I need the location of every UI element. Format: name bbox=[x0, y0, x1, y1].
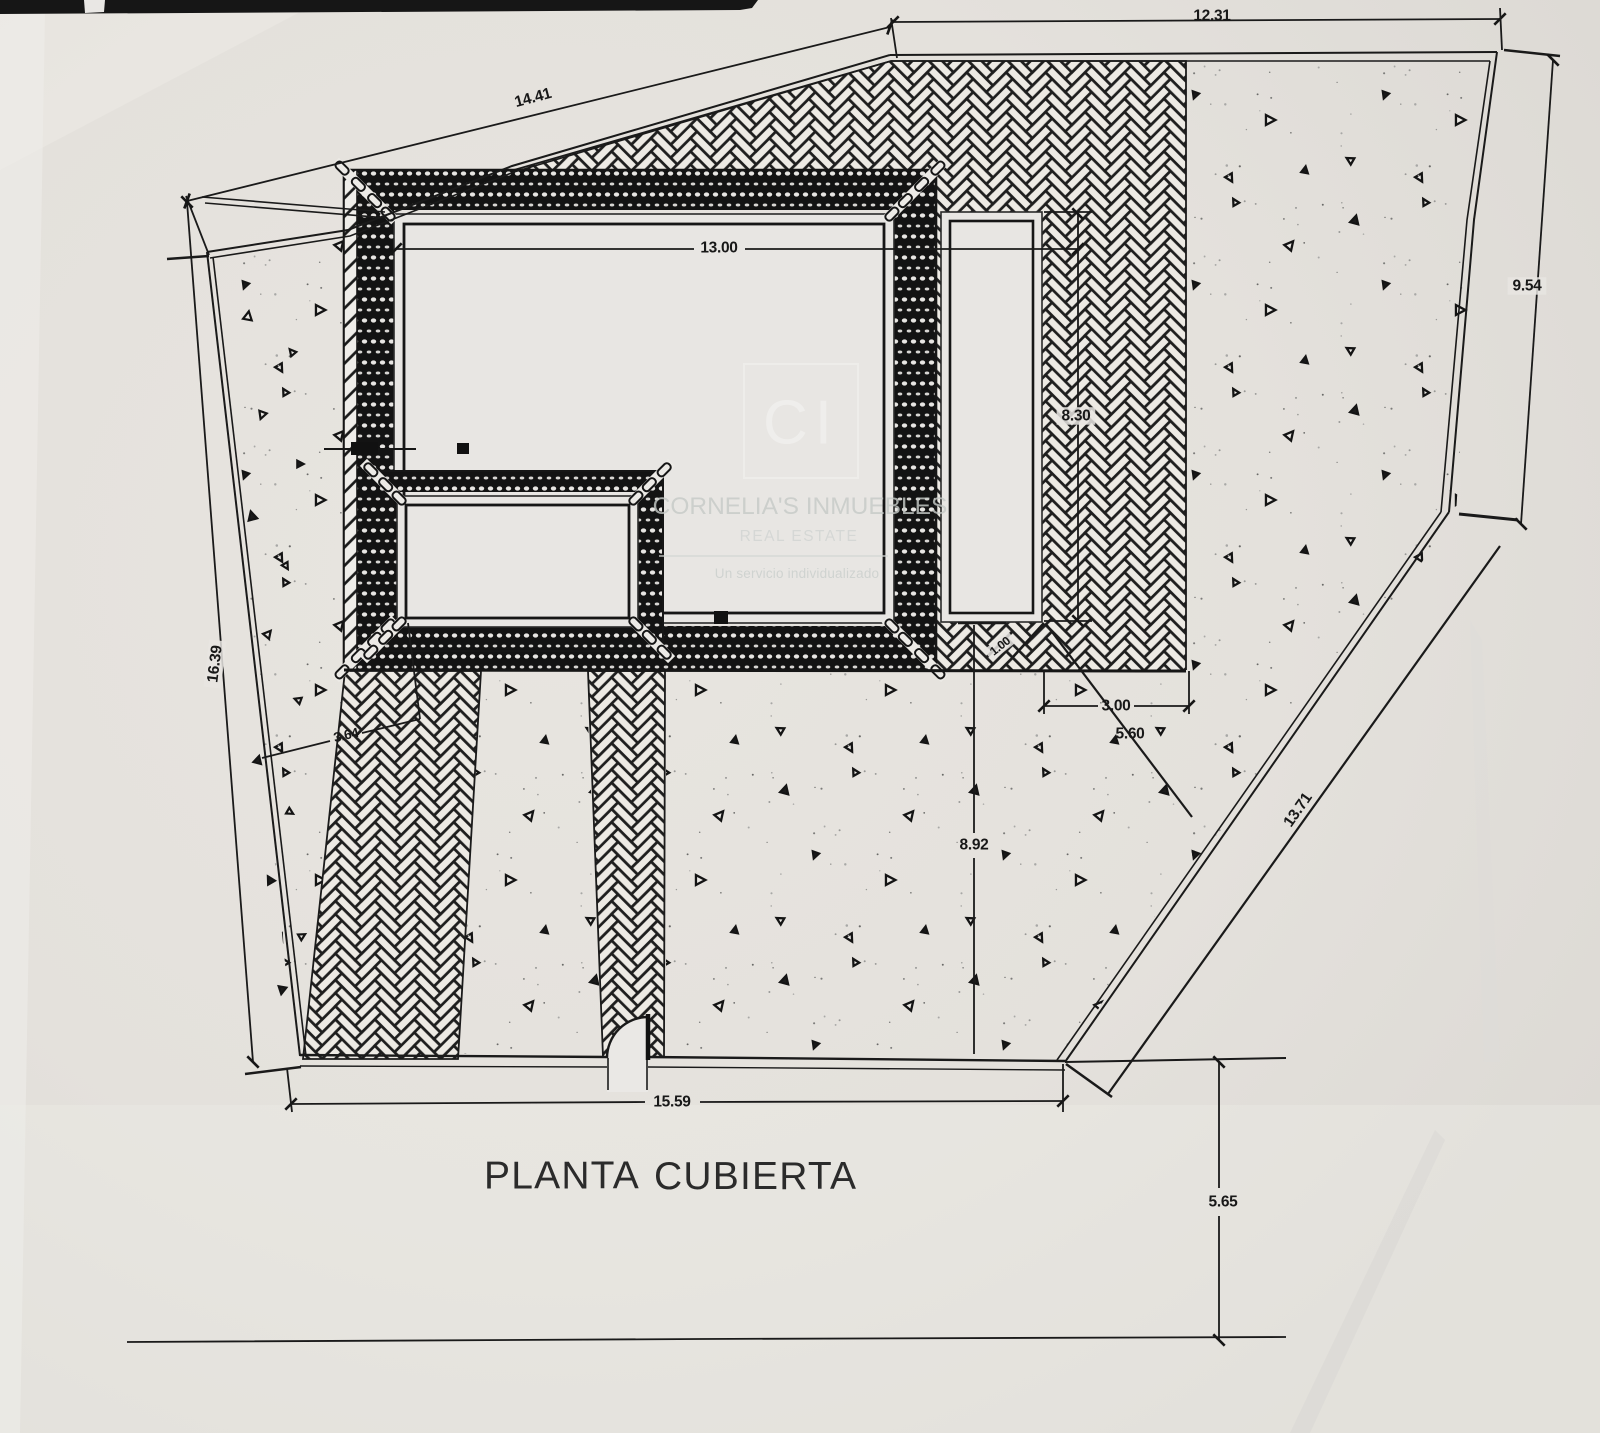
svg-text:5.65: 5.65 bbox=[1209, 1194, 1239, 1211]
svg-text:12.31: 12.31 bbox=[1193, 8, 1231, 25]
svg-text:CI: CI bbox=[763, 389, 839, 458]
svg-text:PLANTACUBIERTA: PLANTACUBIERTA bbox=[484, 1155, 857, 1198]
svg-text:CORNELIA'S INMUEBLES: CORNELIA'S INMUEBLES bbox=[653, 493, 948, 520]
svg-text:Un servicio individualizado: Un servicio individualizado bbox=[715, 566, 879, 581]
svg-text:3.00: 3.00 bbox=[1102, 698, 1131, 715]
svg-text:8.92: 8.92 bbox=[960, 837, 989, 854]
svg-text:15.59: 15.59 bbox=[653, 1094, 691, 1111]
svg-text:8.30: 8.30 bbox=[1062, 408, 1091, 425]
svg-text:5.60: 5.60 bbox=[1116, 726, 1145, 743]
svg-text:13.00: 13.00 bbox=[700, 240, 737, 257]
svg-text:9.54: 9.54 bbox=[1513, 278, 1543, 295]
svg-text:REAL ESTATE: REAL ESTATE bbox=[740, 528, 859, 545]
